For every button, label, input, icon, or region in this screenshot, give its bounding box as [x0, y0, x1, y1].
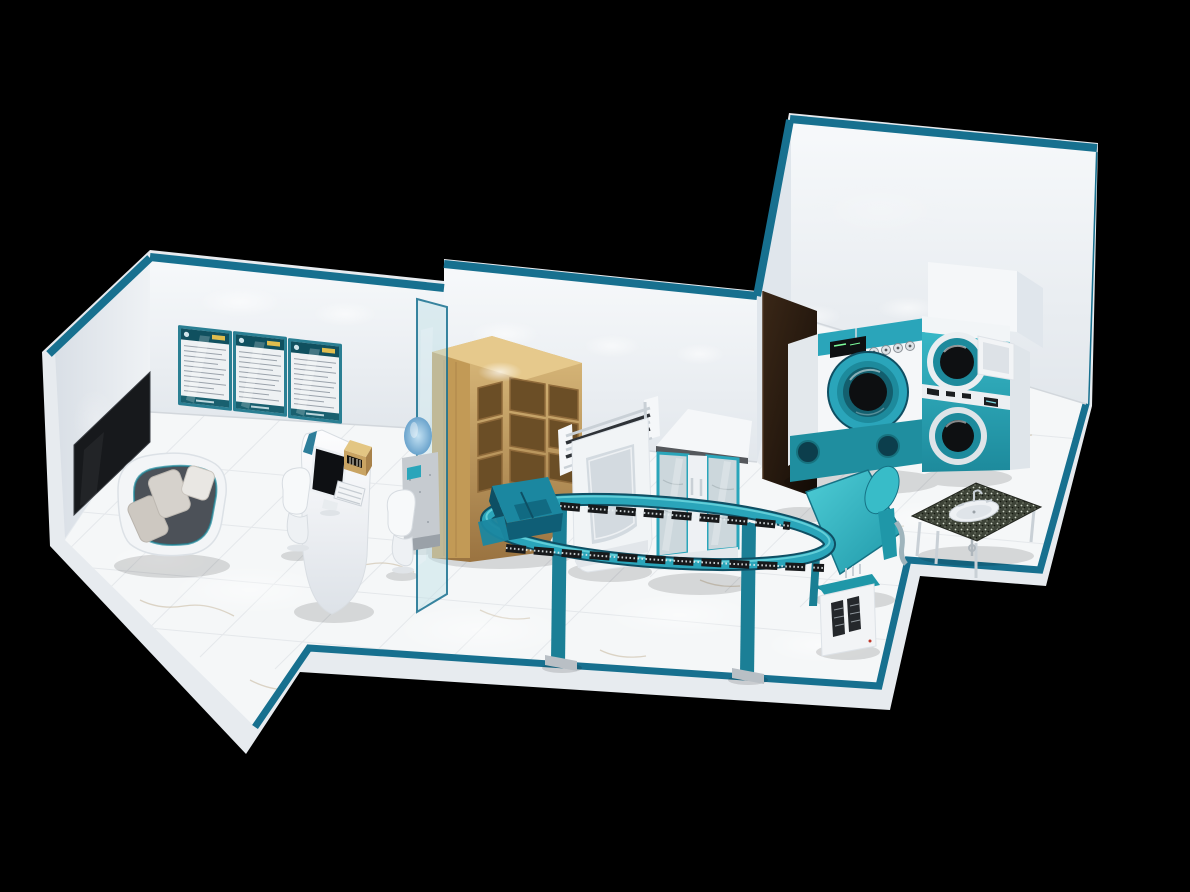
vent-grille-2 [847, 596, 861, 632]
dry-cleaning-machine [788, 318, 932, 482]
dryer-door-open [978, 336, 1014, 380]
display-cabinet [656, 409, 752, 570]
laundry-shop-render [0, 0, 1190, 892]
render-canvas: 3D isometric render of a laundry and dry… [0, 0, 1190, 892]
certificate-poster-3 [288, 338, 342, 424]
mouse [356, 508, 365, 514]
water-bottle [404, 417, 432, 455]
dry-cleaner-drum [828, 352, 908, 432]
pod-sofa [118, 453, 226, 556]
vacuum-unit [818, 574, 880, 656]
washer-drum-bottom [929, 407, 987, 465]
plinth-port-1 [797, 441, 819, 463]
certificate-poster-2 [233, 331, 287, 417]
plinth-port-2 [877, 435, 899, 457]
certificate-poster-1 [178, 325, 232, 411]
vent-grille-1 [831, 600, 845, 637]
